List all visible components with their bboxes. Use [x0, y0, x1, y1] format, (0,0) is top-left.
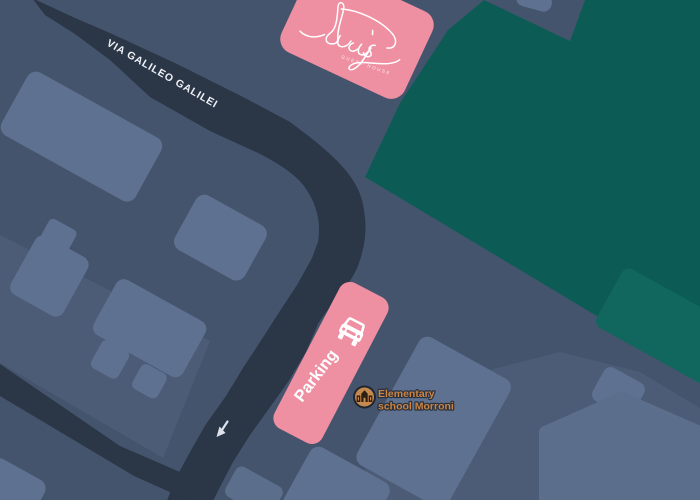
svg-text:Elementary: Elementary — [378, 388, 435, 400]
svg-text:school Morroni: school Morroni — [378, 401, 454, 413]
